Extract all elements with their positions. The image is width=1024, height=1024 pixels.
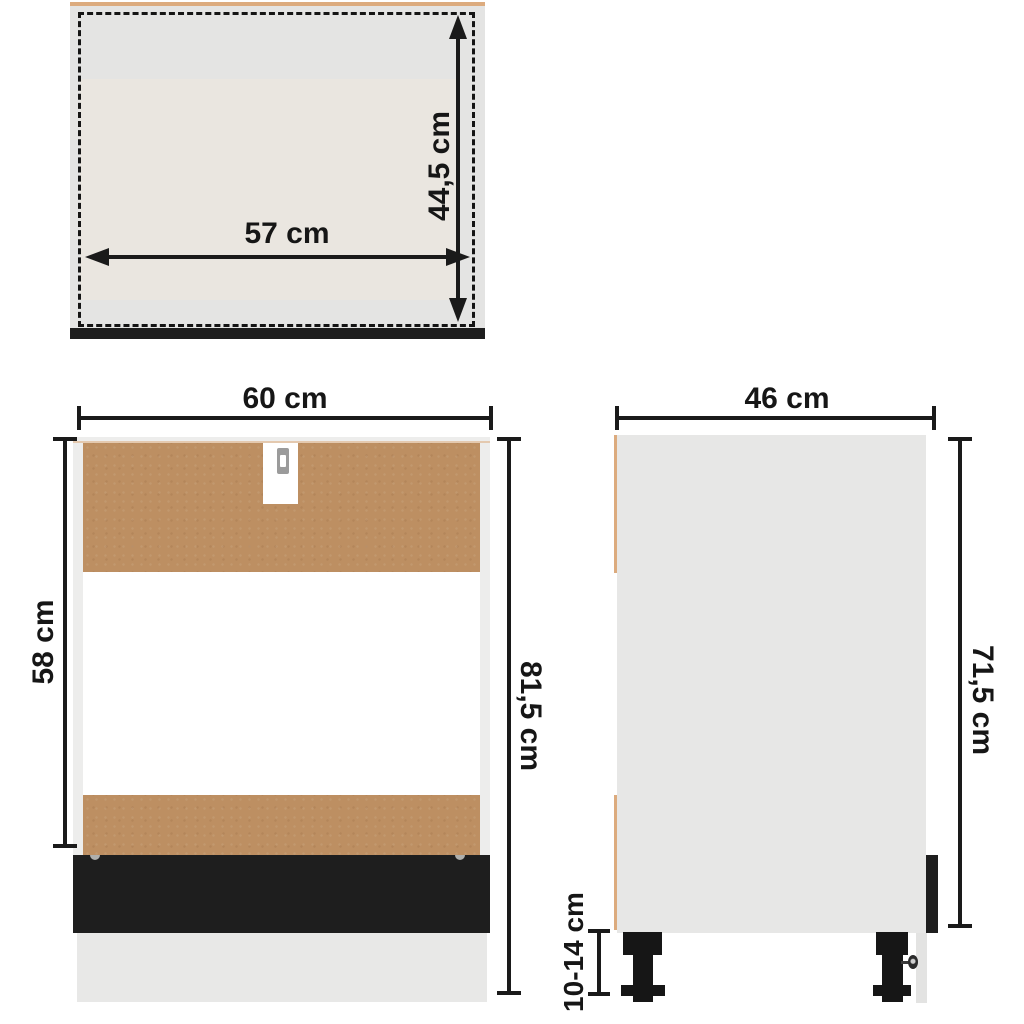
dimension-line bbox=[958, 437, 962, 928]
dimension-label-total-height: 81,5 cm bbox=[515, 661, 545, 771]
dimension-line bbox=[101, 255, 454, 259]
plinth-front-panel bbox=[73, 855, 490, 933]
dimension-label-opening-height: 58 cm bbox=[29, 599, 59, 684]
dimension-line-depth bbox=[615, 406, 936, 430]
dimension-tick bbox=[489, 406, 493, 430]
leg-foot bbox=[621, 985, 665, 996]
dimension-line bbox=[63, 437, 67, 848]
dimension-line-leg-height bbox=[588, 929, 610, 996]
back-panel-edge-lower bbox=[614, 795, 617, 930]
arrowhead-down bbox=[449, 298, 467, 322]
back-panel-edge-upper bbox=[614, 435, 617, 573]
dimension-label-inner-width: 57 cm bbox=[244, 219, 329, 249]
dimension-line bbox=[507, 437, 511, 995]
cabinet-side-panel bbox=[617, 435, 926, 933]
top-view: 57 cm 44,5 cm bbox=[0, 0, 560, 345]
dimension-arrow-inner-width bbox=[85, 248, 470, 266]
dimension-label-leg-height: 10-14 cm bbox=[560, 892, 588, 1012]
dimension-line bbox=[615, 416, 936, 420]
adjustable-leg-front bbox=[873, 932, 923, 1004]
top-view-plinth-bar bbox=[70, 328, 485, 339]
back-panel-lower bbox=[83, 795, 480, 855]
plinth-recess bbox=[77, 933, 487, 1002]
dimension-tick bbox=[588, 992, 610, 996]
front-view: 60 cm 58 cm 81,5 bbox=[0, 380, 560, 1024]
dimension-tick bbox=[932, 406, 936, 430]
oven-opening bbox=[83, 572, 480, 795]
dimension-line bbox=[456, 31, 460, 306]
dimension-tick bbox=[497, 991, 521, 995]
adjustable-leg-rear bbox=[620, 932, 670, 1004]
cabinet-outline-dashed bbox=[78, 12, 475, 327]
leg-adjuster-knob bbox=[908, 955, 918, 969]
dimension-line-width bbox=[77, 406, 493, 430]
cabinet-dimension-diagram: 57 cm 44,5 cm 60 cm bbox=[0, 0, 1024, 1024]
dimension-line bbox=[77, 416, 493, 420]
dimension-line bbox=[597, 929, 601, 996]
side-view: 46 cm 10- bbox=[560, 380, 1024, 1024]
leg-foot bbox=[873, 985, 911, 996]
dimension-tick bbox=[53, 844, 77, 848]
dimension-tick bbox=[948, 924, 972, 928]
dimension-label-inner-depth: 44,5 cm bbox=[425, 111, 455, 221]
plinth-front-panel-edge bbox=[926, 855, 938, 933]
dimension-label-body-height: 71,5 cm bbox=[967, 645, 997, 755]
keyhole-slot-hole bbox=[280, 455, 286, 467]
